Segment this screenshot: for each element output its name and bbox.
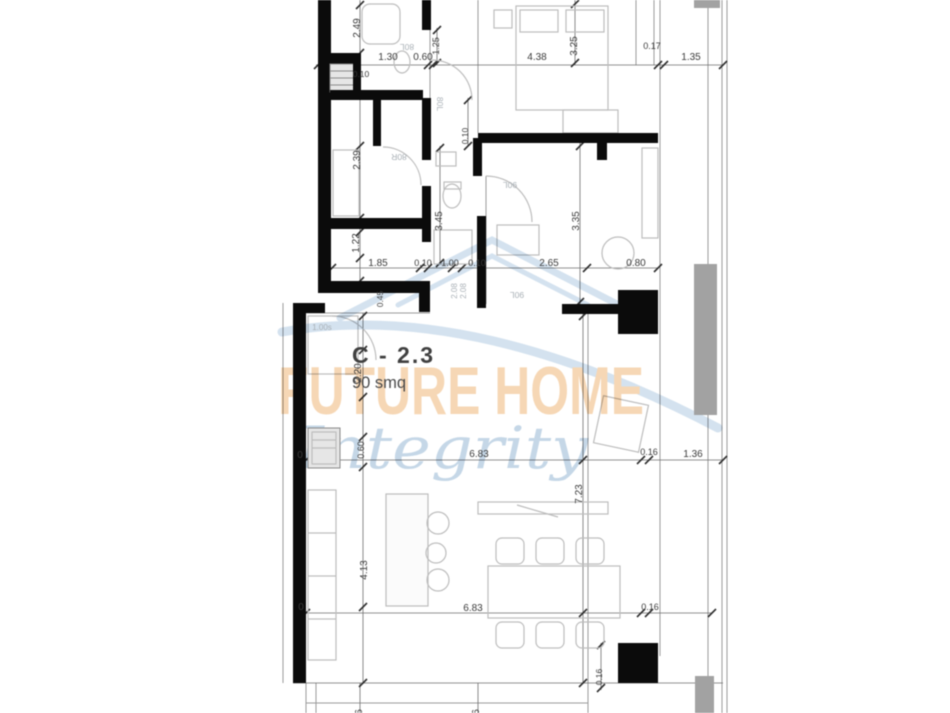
dimension-label: 1.22 xyxy=(351,233,362,253)
dimension-label: 0.10 xyxy=(468,258,486,268)
bathtub xyxy=(362,4,400,44)
nightstand xyxy=(494,10,512,28)
dimension-label: 1.30 xyxy=(378,52,398,63)
door-label: 2.08 xyxy=(459,283,468,299)
floorplan-image: FUTURE HOME Integrity xyxy=(0,0,950,713)
dimension-label: 1.36 xyxy=(683,449,703,460)
duct-shaft xyxy=(308,428,340,468)
shelf-unit xyxy=(308,490,336,660)
dimension-label: 3.45 xyxy=(434,211,445,231)
dimension-label: 2.20 xyxy=(353,363,364,383)
burner-circle xyxy=(426,543,446,563)
chair xyxy=(576,622,604,648)
tv xyxy=(517,505,558,517)
pillow xyxy=(520,10,558,32)
floorplan-svg: FUTURE HOME Integrity xyxy=(0,0,950,713)
chair xyxy=(496,538,524,564)
dimension-label: 3.35 xyxy=(571,211,582,231)
dimension-label: 0.60 xyxy=(356,441,366,459)
dimension-label: 1.85 xyxy=(368,258,388,269)
toilet xyxy=(443,184,461,208)
unit-label: C - 2.3 xyxy=(352,342,435,368)
door-label: 90L xyxy=(510,290,524,300)
dimension-label: 1.35 xyxy=(681,52,701,63)
dimension-label: 6 xyxy=(354,709,365,713)
dimension-label: 1.00 xyxy=(441,258,459,268)
dimension-label: 0.10 xyxy=(353,69,370,79)
dimension-label: 0.10 xyxy=(460,127,470,144)
dimension-label: 0.16 xyxy=(640,447,658,457)
desk xyxy=(563,110,618,133)
sink xyxy=(436,152,456,166)
dimension-label: 0.10 xyxy=(414,258,432,268)
dining-table xyxy=(488,566,620,618)
wardrobe xyxy=(642,148,658,238)
chair xyxy=(496,622,524,648)
door-arc xyxy=(432,60,472,100)
dimension-label: 0.16 xyxy=(594,668,604,685)
dimension-label: 6.83 xyxy=(463,603,483,614)
dimension-label: 0.17 xyxy=(643,41,661,51)
door-label: 2.08 xyxy=(450,283,459,299)
chair xyxy=(536,622,564,648)
dimension-label: 0 xyxy=(297,450,303,461)
watermark-tagline: Integrity xyxy=(297,414,590,482)
watermark: FUTURE HOME Integrity xyxy=(278,240,718,482)
door-label: 1.00s xyxy=(312,323,332,332)
dimension-label: 0 xyxy=(298,602,304,613)
dimension-label: 2.65 xyxy=(539,258,559,269)
burner-circle xyxy=(427,569,449,591)
pillow xyxy=(566,10,604,32)
dimension-label: 4.38 xyxy=(527,52,547,63)
dimension-label: 2.39 xyxy=(352,150,363,170)
dimension-label: 0.16 xyxy=(641,602,659,612)
sink-circle xyxy=(427,512,449,534)
door-label: 80L xyxy=(400,42,414,52)
door-label: 80R xyxy=(391,152,407,162)
dimension-label: 2.49 xyxy=(352,18,363,38)
column xyxy=(618,643,658,683)
balcony-screens xyxy=(694,0,720,713)
dimension-label: 0.80 xyxy=(626,258,646,269)
kitchen-counter xyxy=(386,494,428,606)
dimension-label: 0.45 xyxy=(375,290,385,307)
door-label: 80L xyxy=(435,97,445,111)
door-label: 90L xyxy=(503,180,517,190)
column xyxy=(618,290,658,334)
dimension-label: 3.25 xyxy=(569,36,580,56)
dimension-label: 7.23 xyxy=(574,484,585,504)
dimension-label: 4.13 xyxy=(359,560,370,580)
dimension-label: 6 xyxy=(471,709,482,713)
dimension-label: 1.25 xyxy=(431,37,441,55)
dimension-label: 6.83 xyxy=(469,449,489,460)
chair xyxy=(536,538,564,564)
chair xyxy=(576,538,604,564)
